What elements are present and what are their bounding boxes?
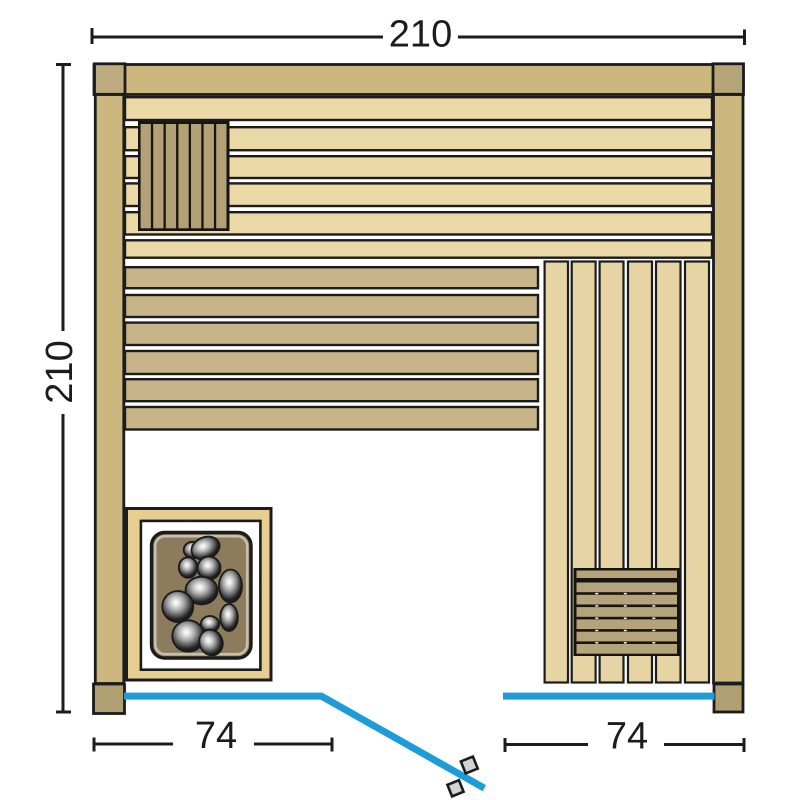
svg-text:210: 210	[389, 14, 452, 56]
svg-text:74: 74	[606, 716, 648, 758]
svg-text:210: 210	[39, 340, 81, 403]
svg-text:74: 74	[195, 715, 237, 757]
